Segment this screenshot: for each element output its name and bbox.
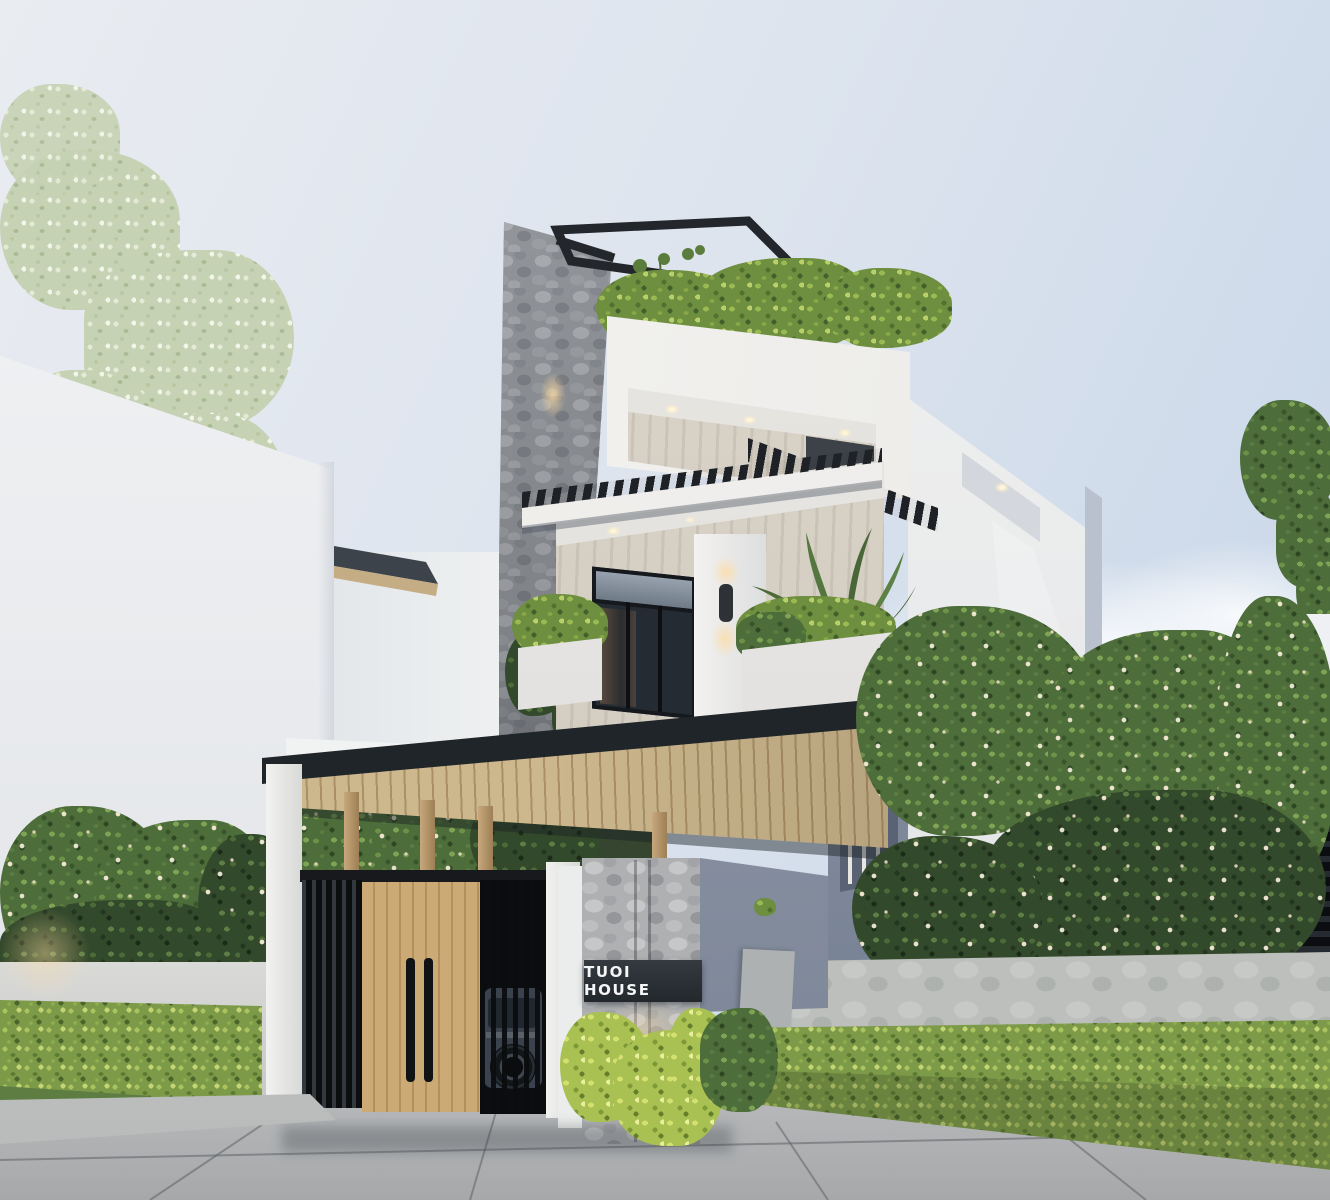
gate-handle: [406, 958, 415, 1082]
wall-sprig: [754, 898, 776, 916]
gate-timber-top-rail: [362, 874, 480, 882]
gate-handle: [424, 958, 433, 1082]
house-sign: TUOI HOUSE: [584, 960, 702, 1002]
architectural-render: TUOI HOUSE: [0, 0, 1330, 1200]
gate-pillar-left: [266, 764, 302, 1106]
garden-light-glow: [0, 908, 90, 998]
accent-plant-green: [700, 1008, 778, 1112]
gate-timber-panel: [362, 882, 480, 1112]
gate-slat-overlay: [480, 880, 546, 1114]
gate-slat-panel-right: [480, 880, 546, 1114]
house-sign-label: TUOI HOUSE: [584, 963, 702, 999]
gate-slat-panel-left: [302, 880, 362, 1108]
